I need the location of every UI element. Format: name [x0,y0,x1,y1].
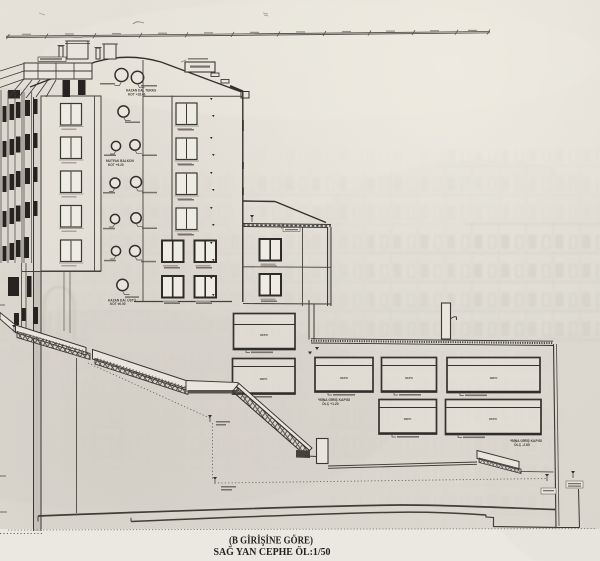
svg-text:DEPO: DEPO [260,333,268,337]
svg-text:SAĞ YAN CEPHE ÖL:1/50: SAĞ YAN CEPHE ÖL:1/50 [214,545,331,558]
svg-text:DEPO: DEPO [405,376,413,380]
svg-text:ÖLÇ +1.20: ÖLÇ +1.20 [322,401,339,406]
svg-text:KOT ±0.00: KOT ±0.00 [110,302,126,306]
svg-text:DEPO: DEPO [340,376,348,380]
svg-text:DEPO: DEPO [489,417,497,421]
svg-text:ÖLÇ -2.80: ÖLÇ -2.80 [514,442,530,447]
svg-text:(B GİRİŞİNE GÖRE): (B GİRİŞİNE GÖRE) [229,534,313,547]
svg-text:DEPO: DEPO [260,377,268,381]
svg-text:DEPO: DEPO [490,376,498,380]
svg-text:DEPO: DEPO [404,417,412,421]
svg-text:KOT +9.20: KOT +9.20 [108,163,124,167]
